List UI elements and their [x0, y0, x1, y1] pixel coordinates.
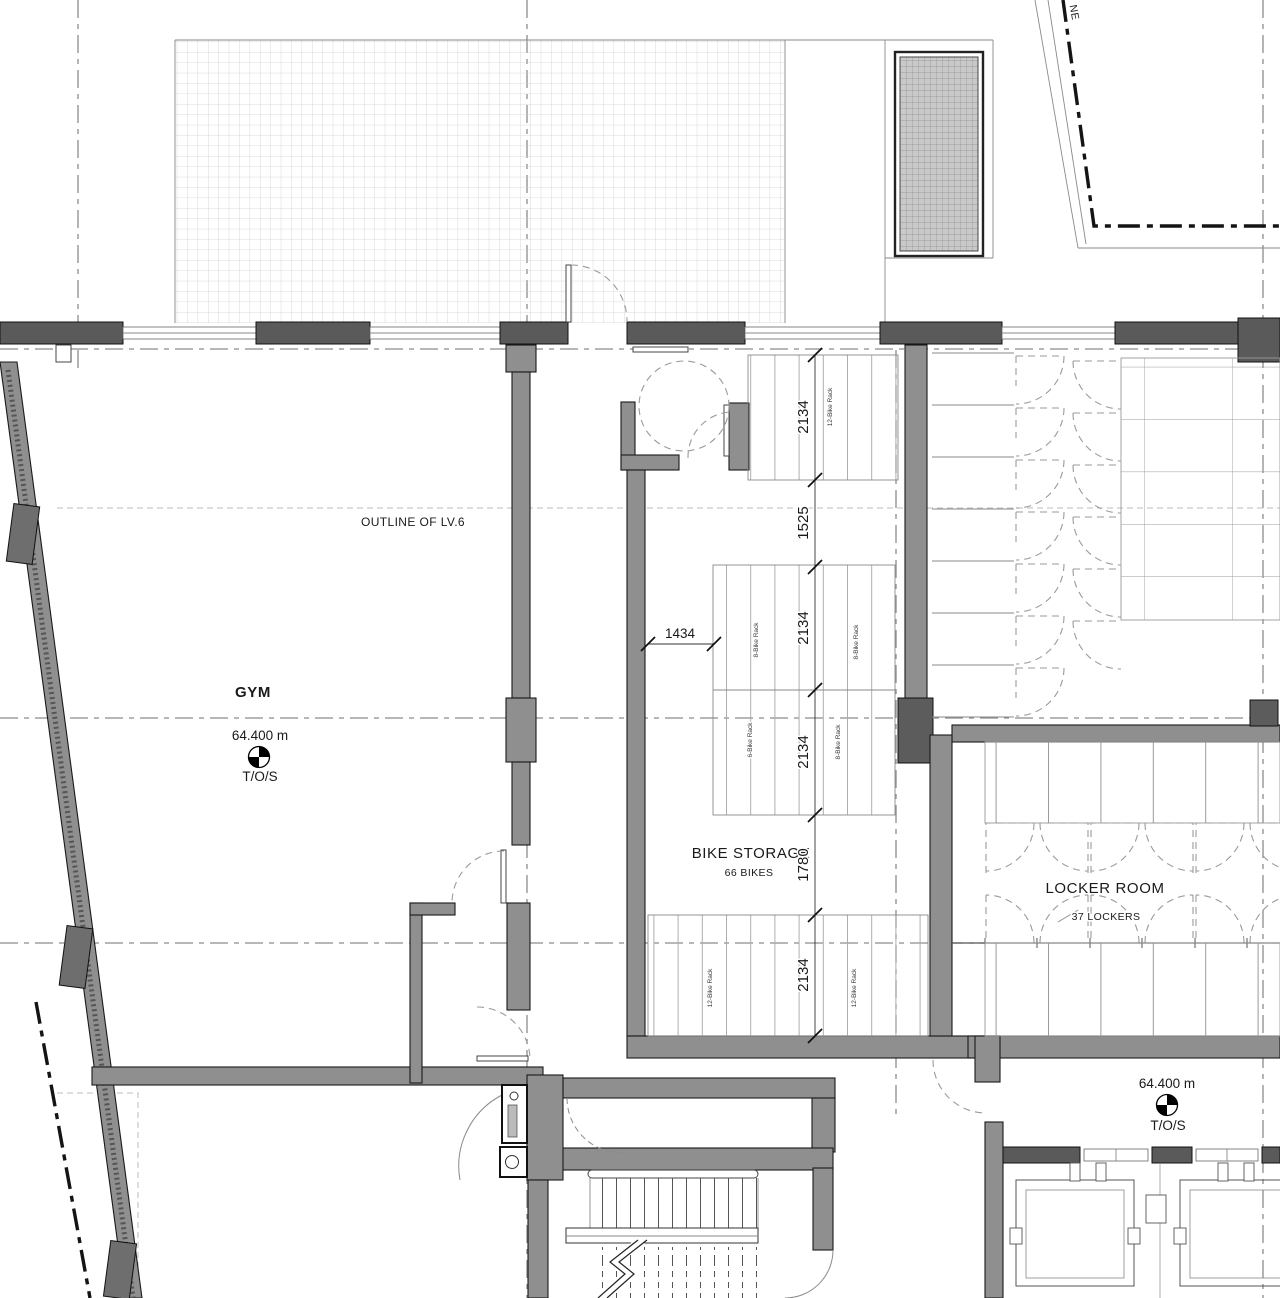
stair-block — [459, 1075, 835, 1298]
outline-lv6-label: OUTLINE OF LV.6 — [361, 515, 465, 529]
bike-rack-top — [748, 355, 898, 480]
locker-room: LOCKER ROOM 37 LOCKERS — [930, 735, 1280, 1113]
lobby-level-ref: T/O/S — [1150, 1118, 1185, 1133]
storage-locker-grid — [1121, 358, 1280, 620]
floor-plan-drawing: NE OUTLINE OF LV.6 GYM 64.400 m T/O/S — [0, 0, 1280, 1298]
shaft-closets — [500, 1085, 527, 1177]
dim-value: 2134 — [795, 735, 812, 768]
dim-value: 2134 — [795, 958, 812, 991]
rack-label: 8-Bike Rack — [753, 622, 760, 658]
dim-value: 1525 — [795, 506, 812, 539]
stair-flight — [566, 1170, 758, 1298]
rack-label: 6-Bike Rack — [747, 722, 754, 758]
lobby-level-symbol — [1157, 1095, 1178, 1116]
locker-doors-upper — [986, 823, 1280, 873]
property-line-east: NE — [1035, 0, 1280, 248]
locker-room-label: LOCKER ROOM — [1045, 880, 1164, 897]
gym-room: OUTLINE OF LV.6 GYM 64.400 m T/O/S — [232, 515, 465, 784]
bike-rack-bottom — [648, 915, 928, 1036]
gym-south-wall — [92, 1067, 543, 1085]
elevator-car-1 — [1010, 1163, 1140, 1286]
gym-label: GYM — [235, 684, 271, 701]
gym-level-ref: T/O/S — [242, 769, 277, 784]
storage-room — [932, 353, 1280, 717]
elevator-rail-hardware — [1146, 1195, 1166, 1223]
rack-label: 8-Bike Rack — [853, 624, 860, 660]
street-label: NE — [1067, 4, 1081, 21]
storage-doors-middle — [1073, 361, 1121, 669]
rack-label: 12-Bike Rack — [707, 968, 714, 1007]
rack-label: 12-Bike Rack — [827, 387, 834, 426]
vestibule — [621, 347, 749, 470]
property-line-west — [36, 1002, 90, 1298]
exterior-wall-north — [0, 318, 1280, 362]
locker-room-capacity: 37 LOCKERS — [1072, 911, 1141, 923]
service-vestibule — [410, 903, 530, 1083]
exterior-wall-west — [0, 362, 142, 1298]
storage-locker-wall — [952, 700, 1280, 742]
bike-dimension-width: 1434 — [641, 626, 721, 651]
elevator-lobby: 64.400 m T/O/S — [985, 1076, 1280, 1298]
storage-stall-dividers — [932, 353, 1014, 717]
gym-east-wall — [506, 345, 536, 845]
dim-value: 2134 — [795, 400, 812, 433]
rack-label: 8-Bike Rack — [835, 724, 842, 760]
bike-storage-capacity: 66 BIKES — [725, 867, 774, 879]
gym-level-symbol — [249, 747, 270, 768]
dim-value: 1434 — [665, 626, 696, 641]
bike-rack-middle — [713, 565, 895, 815]
skylight — [895, 52, 983, 256]
locker-bank-upper — [985, 742, 1280, 823]
terrace-paving — [175, 40, 993, 323]
storage-doors-left — [1016, 356, 1064, 716]
lobby-level: 64.400 m — [1139, 1076, 1195, 1091]
gym-level: 64.400 m — [232, 728, 288, 743]
dim-value: 2134 — [795, 611, 812, 644]
rack-label: 12-Bike Rack — [851, 968, 858, 1007]
elevator-car-2 — [1174, 1163, 1280, 1286]
bike-storage-label: BIKE STORAGE — [692, 845, 811, 862]
gym-door — [452, 850, 506, 903]
floor-plan: NE OUTLINE OF LV.6 GYM 64.400 m T/O/S — [0, 0, 1280, 1298]
dim-value: 1780 — [795, 848, 812, 881]
locker-bank-lower — [985, 943, 1280, 1036]
